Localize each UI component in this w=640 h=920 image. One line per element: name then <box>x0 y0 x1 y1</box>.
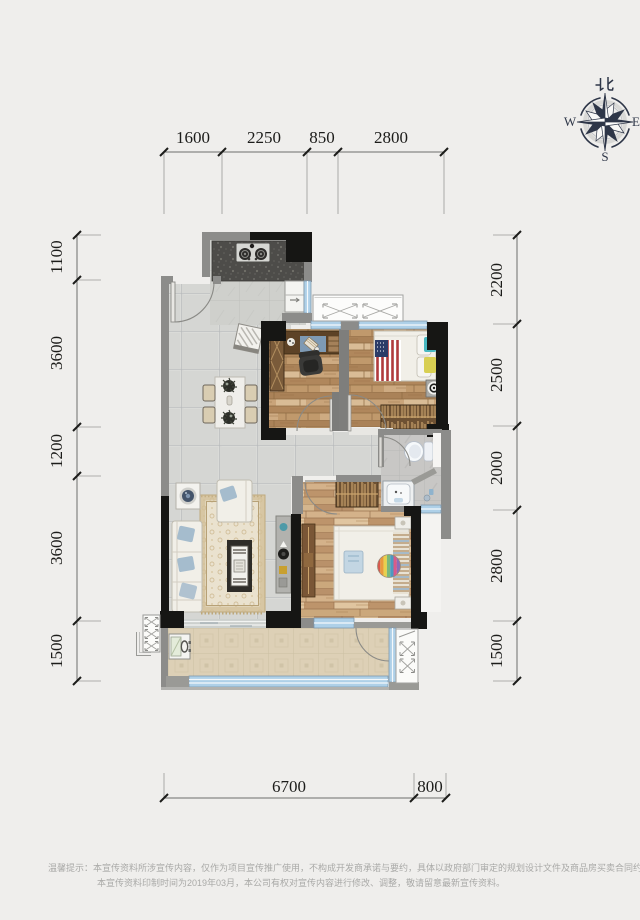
svg-text:S: S <box>601 149 608 164</box>
svg-text:1600: 1600 <box>176 128 210 147</box>
svg-text:1200: 1200 <box>47 434 66 468</box>
svg-text:2000: 2000 <box>487 451 506 485</box>
svg-text:2250: 2250 <box>247 128 281 147</box>
svg-text:2500: 2500 <box>487 358 506 392</box>
svg-text:3600: 3600 <box>47 531 66 565</box>
svg-text:3600: 3600 <box>47 336 66 370</box>
svg-text:800: 800 <box>417 777 443 796</box>
svg-text:850: 850 <box>309 128 335 147</box>
svg-text:1500: 1500 <box>487 634 506 668</box>
svg-text:W: W <box>564 114 577 129</box>
svg-text:2800: 2800 <box>374 128 408 147</box>
svg-text:2800: 2800 <box>487 549 506 583</box>
svg-text:E: E <box>632 114 640 129</box>
svg-text:1100: 1100 <box>47 240 66 273</box>
svg-text:1500: 1500 <box>47 634 66 668</box>
svg-text:2200: 2200 <box>487 263 506 297</box>
svg-text:6700: 6700 <box>272 777 306 796</box>
